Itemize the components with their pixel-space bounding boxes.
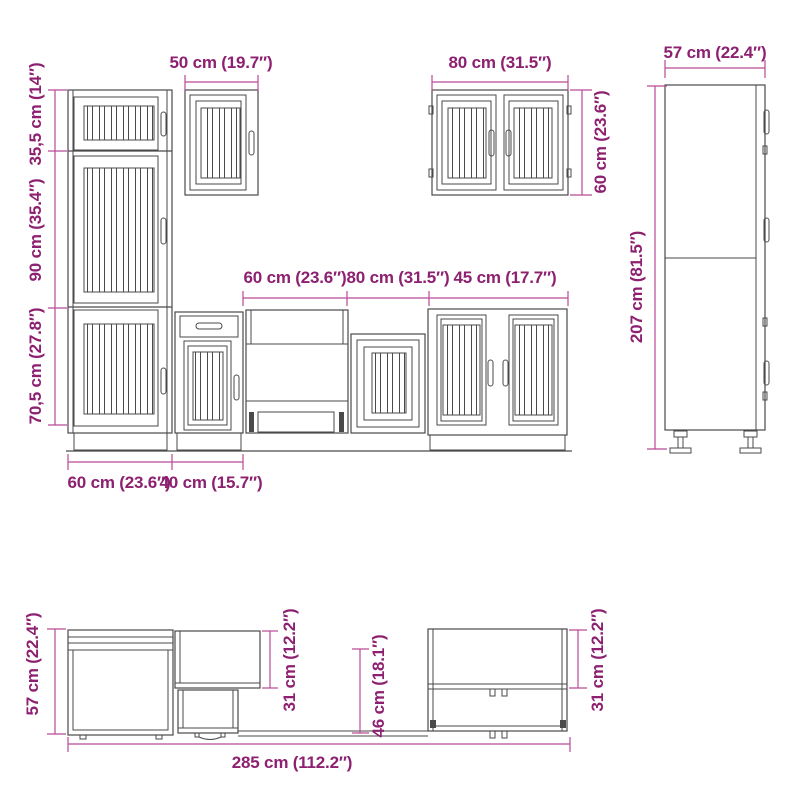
dim-label-assembled-right-depth: 31 cm (12.2″) bbox=[588, 609, 608, 712]
dim-label-side-height: 207 cm (81.5″) bbox=[627, 231, 647, 343]
dimension-diagram: 50 cm (19.7″) 35,5 cm (14″) 90 cm (35.4″… bbox=[0, 0, 800, 800]
dim-label-wall80-height: 60 cm (23.6″) bbox=[591, 91, 611, 194]
tall-cabinet-front-view bbox=[68, 90, 172, 450]
dim-label-tall-middle-section: 90 cm (35.4″) bbox=[26, 179, 46, 282]
assembled-top-view bbox=[68, 629, 567, 740]
dim-label-base45-width: 45 cm (17.7″) bbox=[454, 268, 557, 288]
base-cabinet-40-view bbox=[175, 312, 243, 450]
wall-cabinet-80-view bbox=[429, 90, 571, 195]
dim-label-tall-top-section: 35,5 cm (14″) bbox=[26, 63, 46, 166]
dim-label-wall50-width: 50 cm (19.7″) bbox=[170, 53, 273, 73]
dim-label-sink-width: 60 cm (23.6″) bbox=[244, 268, 347, 288]
dim-label-assembled-tall-depth: 57 cm (22.4″) bbox=[23, 613, 43, 716]
dim-label-side-depth: 57 cm (22.4″) bbox=[664, 43, 767, 63]
dim-label-base80-width: 80 cm (31.5″) bbox=[347, 268, 450, 288]
dim-label-drawer40-width: 40 cm (15.7″) bbox=[160, 473, 263, 493]
base-cabinet-45-view bbox=[428, 309, 567, 450]
base-cabinet-80-view bbox=[351, 334, 425, 433]
dim-label-tall-bottom-section: 70,5 cm (27.8″) bbox=[26, 308, 46, 425]
line-drawing bbox=[0, 0, 800, 800]
sink-cabinet-60-view bbox=[246, 310, 348, 433]
dim-label-total-width: 285 cm (112.2″) bbox=[232, 753, 352, 773]
tall-cabinet-side-view bbox=[665, 85, 769, 453]
wall-cabinet-50-view bbox=[185, 90, 258, 195]
dim-label-tall-width: 60 cm (23.6″) bbox=[68, 473, 171, 493]
dim-label-assembled-base-depth: 46 cm (18.1″) bbox=[369, 635, 389, 738]
dim-label-wall80-width: 80 cm (31.5″) bbox=[449, 53, 552, 73]
dim-label-assembled-wall-depth: 31 cm (12.2″) bbox=[280, 609, 300, 712]
